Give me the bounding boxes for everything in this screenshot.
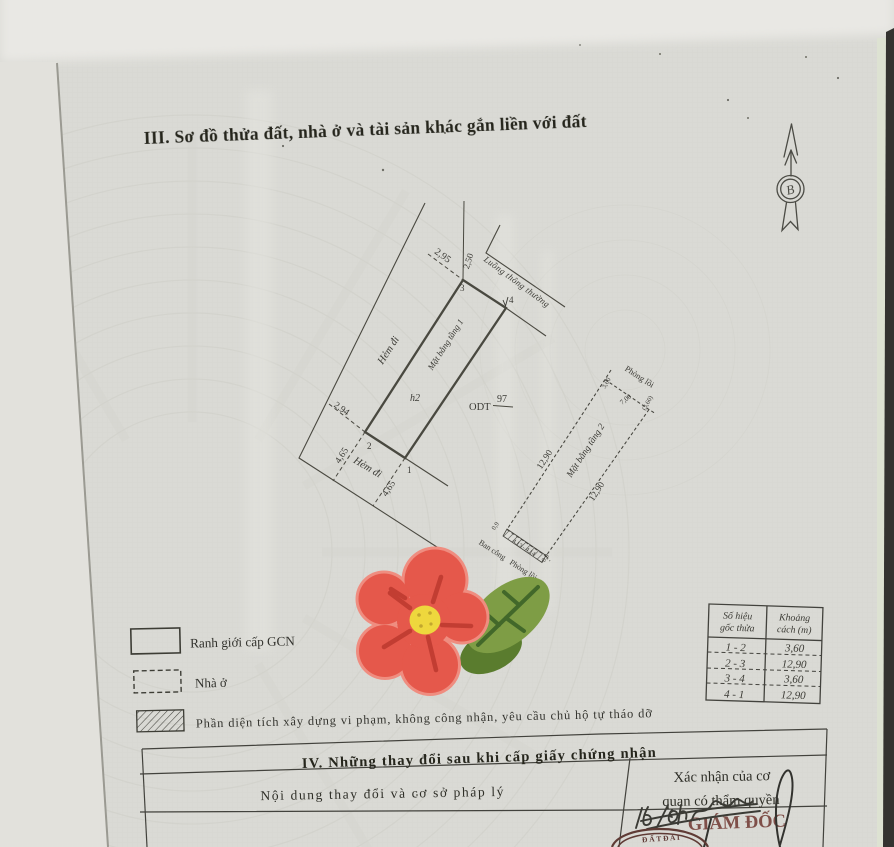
svg-text:12,90: 12,90 xyxy=(781,689,807,702)
svg-text:1 - 2: 1 - 2 xyxy=(725,642,746,655)
svg-text:Ranh giới cấp GCN: Ranh giới cấp GCN xyxy=(190,633,296,650)
svg-text:Nhà ở: Nhà ở xyxy=(195,675,228,691)
svg-text:97: 97 xyxy=(497,394,507,405)
svg-text:4 - 1: 4 - 1 xyxy=(724,689,745,702)
svg-text:4: 4 xyxy=(509,295,514,305)
svg-text:Xác nhận của cơ: Xác nhận của cơ xyxy=(673,768,770,786)
svg-text:Khoảng: Khoảng xyxy=(778,612,810,624)
svg-text:12,90: 12,90 xyxy=(782,658,808,671)
svg-text:1: 1 xyxy=(407,465,412,475)
svg-text:ODT: ODT xyxy=(469,402,491,413)
svg-text:2 - 3: 2 - 3 xyxy=(725,658,746,671)
svg-text:2: 2 xyxy=(367,441,372,451)
svg-text:gốc thửa: gốc thửa xyxy=(720,622,755,634)
svg-text:Số hiệu: Số hiệu xyxy=(723,610,753,622)
svg-text:3,60: 3,60 xyxy=(783,673,804,686)
svg-text:cách (m): cách (m) xyxy=(777,624,812,636)
svg-text:3 - 4: 3 - 4 xyxy=(723,672,745,685)
svg-text:3,60: 3,60 xyxy=(784,642,805,655)
svg-text:3: 3 xyxy=(460,283,465,293)
svg-text:h2: h2 xyxy=(410,393,420,404)
